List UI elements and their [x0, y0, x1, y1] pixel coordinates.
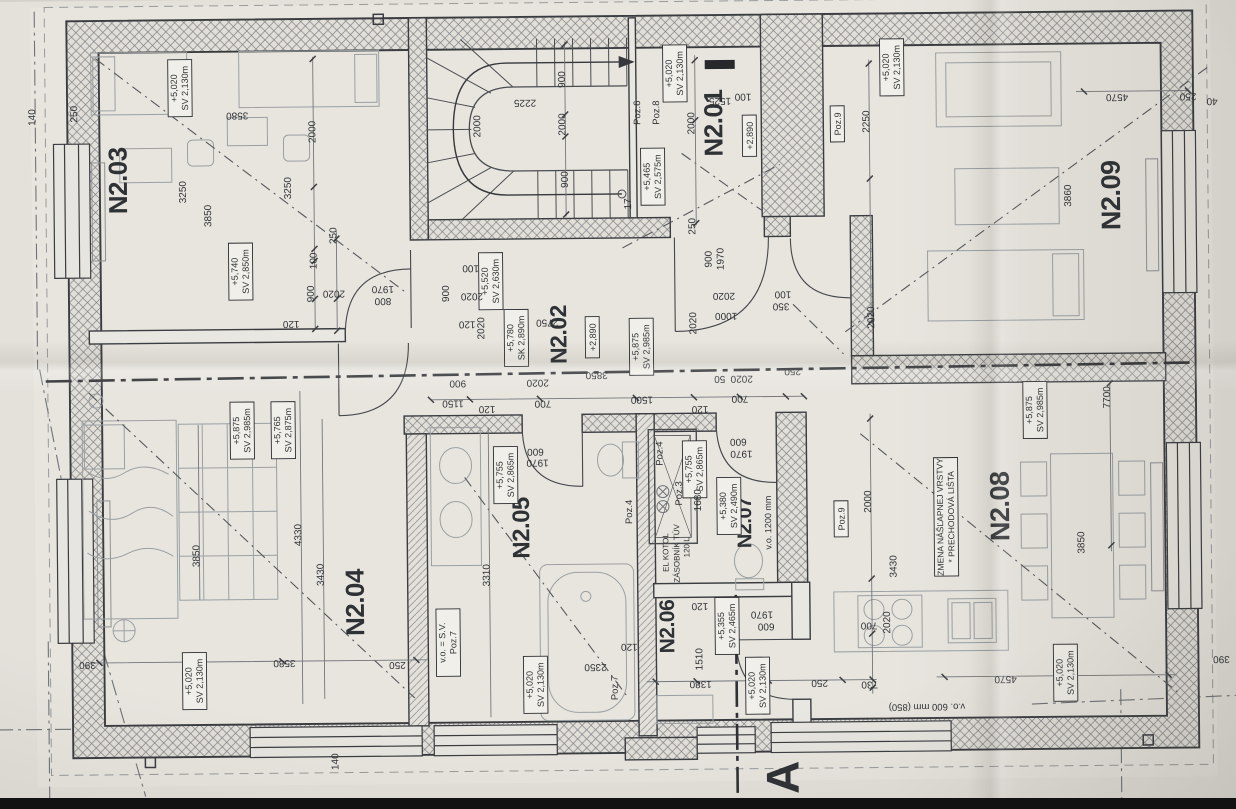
- dimension-text: 140: [27, 109, 38, 126]
- label-line1: +5,020: [664, 60, 674, 88]
- elevation-label: +2,890: [585, 317, 599, 358]
- label-line1: +5,020: [169, 74, 179, 102]
- dimension-text: 1970: [715, 247, 726, 270]
- floorplan-svg: N2.03N2.01N2.09N2.02N2.04N2.05N2.07N2.06…: [0, 0, 1236, 809]
- dimension-text: 1970: [526, 457, 549, 468]
- label-line2: SV 2,630m: [491, 259, 501, 304]
- dimension-text: 3250: [178, 181, 189, 204]
- dimension-text: 1680: [693, 489, 704, 512]
- dimension-text: 3860: [1063, 184, 1074, 207]
- dimension-text: 350: [772, 300, 789, 311]
- dimension-text: 700: [534, 398, 551, 409]
- dimension-text: 4330: [293, 523, 304, 546]
- dimension-text: 2000: [557, 113, 568, 136]
- label-line1: +2,890: [588, 323, 598, 351]
- label-line1: +5,755: [495, 461, 505, 489]
- dimension-text: 250: [69, 105, 80, 122]
- room-label: N2.06: [656, 600, 680, 654]
- dimension-text: 730: [861, 679, 878, 690]
- dimension-text: 120: [620, 641, 637, 652]
- dimension-text: 900: [557, 71, 568, 88]
- text-label: ZÁSOBNÍK TÚV: [672, 523, 682, 582]
- label-line2: SV 2,985m: [1035, 388, 1045, 433]
- label-line2: SV 2,130m: [1065, 650, 1075, 695]
- dimension-text: 900: [306, 285, 317, 302]
- dimension-text: 120: [691, 403, 708, 414]
- label-line2: SV 2,490m: [729, 484, 739, 529]
- dimension-text: 700: [860, 620, 877, 631]
- dimension-text: 3580: [226, 110, 249, 121]
- dimension-text: 2250: [861, 110, 872, 133]
- label-line2: SV 2,850m: [240, 249, 250, 294]
- window: [1166, 442, 1202, 608]
- dimension-text: 3580: [273, 657, 296, 668]
- elevation-label: +5,020SV 2,130m: [745, 657, 770, 714]
- text-label: Poz.4: [654, 441, 665, 465]
- label-line1: Poz.9: [836, 507, 846, 530]
- text-label: A: [756, 761, 808, 795]
- dimension-text: 4570: [1105, 91, 1128, 102]
- dimension-text: 2350: [584, 661, 607, 672]
- dimension-text: 2000: [686, 112, 697, 135]
- label-line1: +5,355: [716, 612, 726, 640]
- elevation-label: +5,755SV 2,865m: [493, 446, 518, 503]
- room-label: N2.05: [508, 497, 536, 559]
- label-line2: SV 2,130m: [535, 662, 545, 707]
- dimension-text: 1380: [689, 678, 712, 689]
- dimension-text: 900: [441, 285, 452, 302]
- dimension-text: 140: [330, 753, 341, 770]
- label-line2: SK 2,890m: [516, 316, 526, 361]
- window: [1161, 130, 1197, 292]
- label-line1: +5,020: [183, 667, 193, 695]
- change-of-flooring-note: ZMENA NÁŠĽAPNEJ VRSTVY* PRECHODOVÁ LIŠTA: [934, 458, 959, 577]
- dimension-text: 3850: [585, 369, 608, 380]
- label-line2: SV 2,130m: [757, 663, 767, 708]
- dimension-text: 120: [458, 318, 475, 329]
- poz-label: Poz.9: [834, 501, 848, 537]
- label-line1: +5,020: [1054, 659, 1064, 687]
- dimension-text: 2020: [460, 290, 483, 301]
- dimension-text: 390: [1213, 653, 1230, 664]
- label-line1: +5,765: [272, 416, 282, 444]
- dimension-text: 100: [734, 91, 751, 102]
- text-label: v.o. 600 mm (850): [889, 701, 965, 713]
- dimension-text: 2020: [688, 312, 699, 335]
- room-label: N2.02: [545, 305, 572, 364]
- elevation-label: +2,890: [742, 115, 756, 156]
- elevation-label: +5,740SV 2,850m: [228, 243, 253, 300]
- dimension-text: 120: [478, 403, 495, 414]
- text-label: Poz.6: [632, 101, 643, 125]
- label-line2: SV 2,865m: [694, 447, 704, 492]
- elevation-label: +5,875SV 2,985m: [629, 318, 654, 375]
- label-line1: +5,020: [525, 671, 535, 699]
- dimension-text: 700: [731, 393, 748, 404]
- label-line2: SV 2,465m: [727, 604, 737, 649]
- label-line2: Poz.7: [448, 631, 458, 654]
- text-label: Poz.4: [624, 500, 635, 524]
- dimension-text: 1970: [750, 609, 773, 620]
- label-line2: * PRECHODOVÁ LIŠTA: [946, 471, 957, 563]
- label-line2: SV 2,985m: [242, 408, 252, 453]
- dimension-text: 3430: [315, 563, 326, 586]
- label-line2: SV 2,575m: [653, 154, 663, 199]
- room-label: N2.08: [985, 471, 1016, 541]
- dimension-text: 3250: [283, 177, 294, 200]
- dimension-text: 4570: [994, 673, 1017, 684]
- poz-label: Poz.9: [830, 106, 844, 142]
- dimension-text: 2000: [472, 115, 483, 138]
- label-line2: SV 2,985m: [641, 324, 651, 369]
- elevation-label: +5,780SK 2,890m: [504, 309, 529, 366]
- dimension-text: 600: [527, 446, 544, 457]
- text-label: v.o. 1200 mm: [763, 496, 774, 550]
- elevation-label: v.o. = S.V.Poz.7: [436, 609, 461, 677]
- text-label: EL KOTOL: [661, 533, 670, 572]
- elevation-label: +5,020SV 2,130m: [663, 45, 688, 102]
- label-line2: SV 2,875m: [283, 408, 293, 453]
- elevation-label: +5,020SV 2,130m: [168, 60, 193, 117]
- elevation-label: +5,020SV 2,130m: [182, 652, 207, 709]
- label-line1: +5,875: [630, 333, 640, 361]
- dimension-text: 2020: [476, 317, 487, 340]
- floorplan-sheet: N2.03N2.01N2.09N2.02N2.04N2.05N2.07N2.06…: [0, 0, 1236, 809]
- dimension-text: 3430: [888, 555, 899, 578]
- window: [697, 727, 755, 754]
- photo-of-floorplan: N2.03N2.01N2.09N2.02N2.04N2.05N2.07N2.06…: [0, 0, 1236, 809]
- label-line1: Poz.9: [833, 112, 843, 135]
- label-line1: +2,890: [745, 122, 755, 150]
- label-line2: SV 2,130m: [892, 45, 902, 90]
- dimension-text: 2000: [863, 490, 874, 513]
- elevation-label: +5,020SV 2,130m: [879, 39, 904, 96]
- window: [434, 725, 557, 756]
- dimension-text: 1000: [715, 310, 738, 321]
- room-label: N2.04: [340, 568, 371, 636]
- text-label: 17: [623, 198, 634, 210]
- dimension-text: 50: [714, 373, 726, 384]
- window: [771, 721, 951, 753]
- dimension-text: 2000: [307, 120, 318, 143]
- label-line2: SV 2,130m: [180, 66, 190, 111]
- label-line1: +5,740: [230, 258, 240, 286]
- label-line1: +5,020: [881, 53, 891, 81]
- window: [53, 144, 90, 278]
- text-label: Poz.3: [674, 481, 685, 505]
- dimension-text: 1970: [730, 448, 753, 459]
- text-label: Poz.8: [651, 100, 662, 124]
- label-line1: +5,380: [718, 492, 728, 520]
- dimension-text: 1970: [371, 283, 394, 294]
- label-line1: +5,755: [683, 455, 693, 483]
- dimension-text: 1525: [708, 95, 731, 106]
- dimension-text: 100: [462, 262, 479, 273]
- dimension-text: 250: [389, 659, 406, 670]
- dimension-text: 250: [687, 217, 698, 234]
- label-line2: SV 2,130m: [194, 659, 204, 704]
- elevation-label: +5,380SV 2,490m: [717, 477, 742, 534]
- dimension-text: 120: [691, 600, 708, 611]
- dimension-text: 1500: [630, 394, 653, 405]
- dimension-text: 1150: [442, 397, 464, 408]
- label-line1: +5,780: [505, 324, 515, 352]
- elevation-label: +5,355SV 2,465m: [715, 597, 740, 654]
- elevation-label: +5,020SV 2,130m: [1053, 644, 1078, 701]
- dimension-text: 250: [328, 227, 339, 244]
- text-label: 120 L: [682, 537, 691, 558]
- note-box: ZMENA NÁŠĽAPNEJ VRSTVY* PRECHODOVÁ LIŠTA: [934, 458, 959, 577]
- dimension-text: 3850: [203, 204, 214, 227]
- label-line1: v.o. = S.V.: [437, 623, 447, 663]
- dimension-text: 2020: [526, 377, 549, 388]
- room-label: N2.03: [102, 147, 133, 214]
- label-line1: +5,020: [747, 672, 757, 700]
- dimension-text: 2020: [730, 373, 753, 384]
- ceiling-symbol: [113, 620, 135, 642]
- room-label: N2.09: [1096, 160, 1127, 230]
- dimension-text: 3310: [482, 564, 493, 587]
- dimension-text: 2020: [866, 306, 877, 329]
- dimension-text: 390: [79, 659, 96, 670]
- dimension-text: 2750: [536, 317, 559, 328]
- dimension-text: 250: [811, 677, 828, 688]
- dimension-text: 3850: [1076, 531, 1087, 554]
- dimension-text: 900: [704, 250, 715, 267]
- label-line1: ZMENA NÁŠĽAPNEJ VRSTVY: [935, 458, 946, 576]
- window: [250, 726, 422, 758]
- dimension-text: 2225: [513, 97, 536, 108]
- label-line2: SV 2,865m: [505, 453, 515, 498]
- dimension-text: 100: [774, 288, 791, 299]
- dimension-text: 3850: [191, 544, 202, 567]
- dimension-text: 2020: [712, 290, 735, 301]
- label-line1: +5,875: [1024, 396, 1034, 424]
- dimension-text: 1510: [694, 648, 705, 671]
- elevation-label: +5,875SV 2,985m: [230, 402, 255, 459]
- dimension-text: 40: [1206, 95, 1218, 106]
- dimension-text: 2020: [882, 611, 893, 634]
- dimension-text: 900: [449, 377, 466, 388]
- elevation-label: +5,020SV 2,130m: [523, 656, 548, 713]
- dimension-text: 2020: [322, 288, 345, 299]
- elevation-label: +5,465SV 2,575m: [641, 148, 666, 205]
- label-line1: +5,465: [642, 163, 652, 191]
- label-line2: SV 2,130m: [675, 51, 685, 96]
- dimension-text: 600: [730, 436, 747, 447]
- dimension-text: 100: [309, 252, 320, 269]
- dimension-text: 600: [757, 621, 774, 632]
- dimension-text: 800: [374, 295, 391, 306]
- label-line1: +5,875: [231, 417, 241, 445]
- dimension-text: 900: [560, 171, 571, 188]
- dimension-text: 250: [784, 365, 801, 376]
- dimension-text: 7700: [1102, 386, 1113, 409]
- dimension-text: 250: [1179, 90, 1196, 101]
- text-label: Poz.7: [610, 676, 621, 700]
- elevation-label: +5,765SV 2,875m: [271, 402, 296, 459]
- elevation-label: +5,875SV 2,985m: [1023, 381, 1048, 438]
- dimension-text: 120: [282, 318, 299, 329]
